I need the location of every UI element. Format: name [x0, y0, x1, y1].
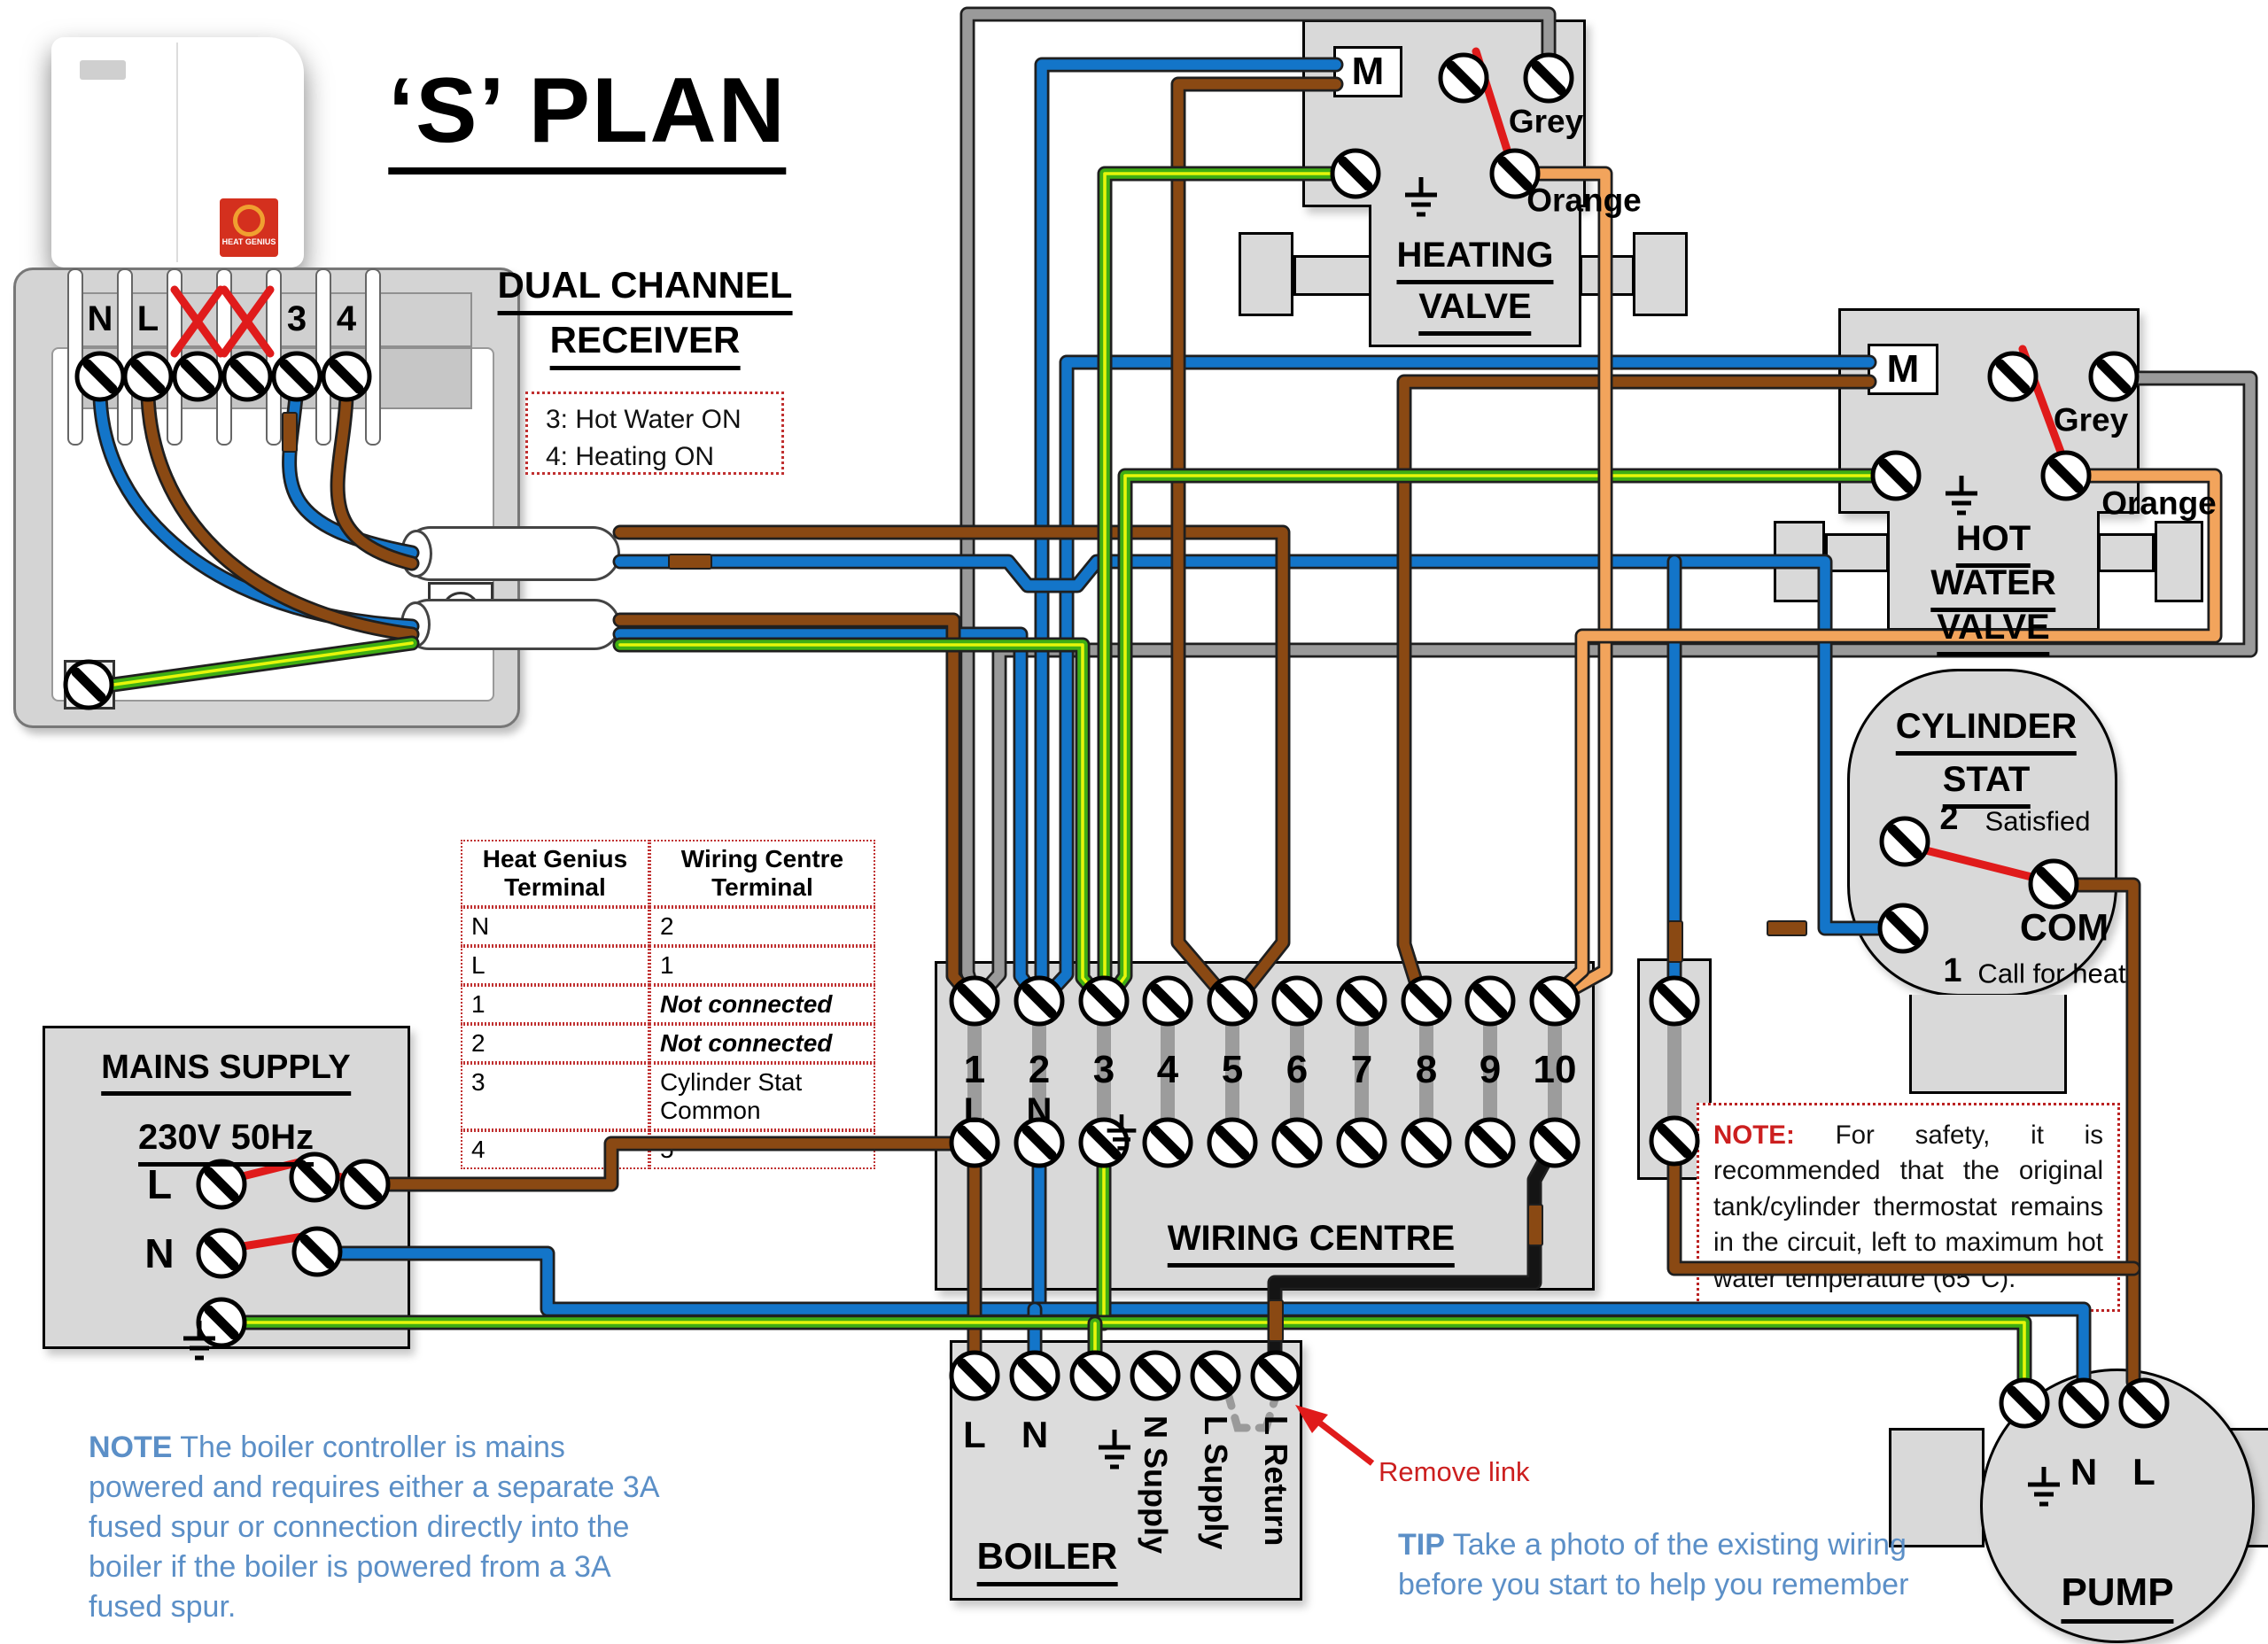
boiler-n-supply-label: N Supply	[1139, 1415, 1171, 1554]
wiring-centre-live-label: L	[964, 1093, 985, 1128]
labels-layer: ‘S’ PLAN DUAL CHANNEL RECEIVER N L 3 4 M…	[0, 0, 2268, 1644]
boiler-live-label: L	[963, 1416, 986, 1454]
s-plan-wiring-diagram: HEAT GENIUS 3: Hot Water ON 4: Heating O…	[0, 0, 2268, 1644]
receiver-title-line-2: RECEIVER	[550, 322, 741, 359]
pump-title: PUMP	[2061, 1573, 2173, 1612]
wiring-centre-terminal-5: 5	[1222, 1051, 1243, 1090]
wiring-centre-terminal-9: 9	[1480, 1051, 1501, 1090]
heating-valve-name-2: VALVE	[1418, 289, 1531, 324]
cylinder-stat-title-1: CYLINDER	[1896, 709, 2077, 744]
receiver-title-line-1: DUAL CHANNEL	[498, 267, 793, 304]
wiring-centre-terminal-3: 3	[1093, 1051, 1115, 1090]
wiring-centre-neutral-label: N	[1027, 1093, 1052, 1128]
cylinder-stat-terminal-1: 1	[1943, 954, 1961, 988]
mains-supply-title: MAINS SUPPLY	[101, 1051, 351, 1084]
receiver-terminal-n: N	[88, 301, 113, 337]
mains-neutral-label: N	[144, 1233, 174, 1274]
wiring-centre-title: WIRING CENTRE	[1168, 1221, 1455, 1256]
wiring-centre-terminal-10: 10	[1534, 1051, 1577, 1090]
boiler-title: BOILER	[977, 1538, 1118, 1575]
pump-live-label: L	[2132, 1454, 2155, 1491]
wiring-centre-terminal-2: 2	[1029, 1051, 1050, 1090]
hot-water-valve-orange-label: Orange	[2101, 487, 2217, 520]
wiring-centre-terminal-6: 6	[1286, 1051, 1308, 1090]
boiler-neutral-label: N	[1021, 1416, 1048, 1454]
wiring-centre-terminal-8: 8	[1416, 1051, 1437, 1090]
heating-valve-motor-label: M	[1352, 52, 1385, 91]
hot-water-valve-name-2: WATER	[1930, 565, 2055, 601]
heating-valve-name-1: HEATING	[1396, 237, 1553, 273]
heating-valve-grey-label: Grey	[1509, 105, 1583, 138]
receiver-terminal-4: 4	[337, 301, 356, 337]
hot-water-valve-motor-label: M	[1887, 350, 1920, 389]
receiver-terminal-l: L	[137, 301, 159, 337]
cylinder-stat-call-for-heat: Call for heat	[1977, 960, 2125, 988]
cylinder-stat-terminal-2: 2	[1939, 802, 1958, 835]
cylinder-stat-com: COM	[2020, 910, 2109, 948]
hot-water-valve-name-1: HOT	[1956, 521, 2031, 556]
hot-water-valve-name-3: VALVE	[1937, 609, 2049, 645]
boiler-l-return-label: L Return	[1260, 1415, 1292, 1546]
hot-water-valve-grey-label: Grey	[2054, 404, 2128, 437]
cylinder-stat-satisfied: Satisfied	[1985, 808, 2091, 835]
receiver-terminal-3: 3	[287, 301, 307, 337]
heating-valve-orange-label: Orange	[1526, 184, 1642, 217]
wiring-centre-terminal-7: 7	[1351, 1051, 1372, 1090]
cylinder-stat-title-2: STAT	[1943, 762, 2031, 797]
pump-neutral-label: N	[2070, 1454, 2097, 1491]
boiler-l-supply-label: L Supply	[1200, 1415, 1231, 1549]
mains-supply-rating: 230V 50Hz	[138, 1120, 314, 1155]
wiring-centre-terminal-4: 4	[1157, 1051, 1178, 1090]
mains-live-label: L	[147, 1164, 172, 1205]
page-title: ‘S’ PLAN	[388, 65, 786, 157]
wiring-centre-terminal-1: 1	[964, 1051, 985, 1090]
